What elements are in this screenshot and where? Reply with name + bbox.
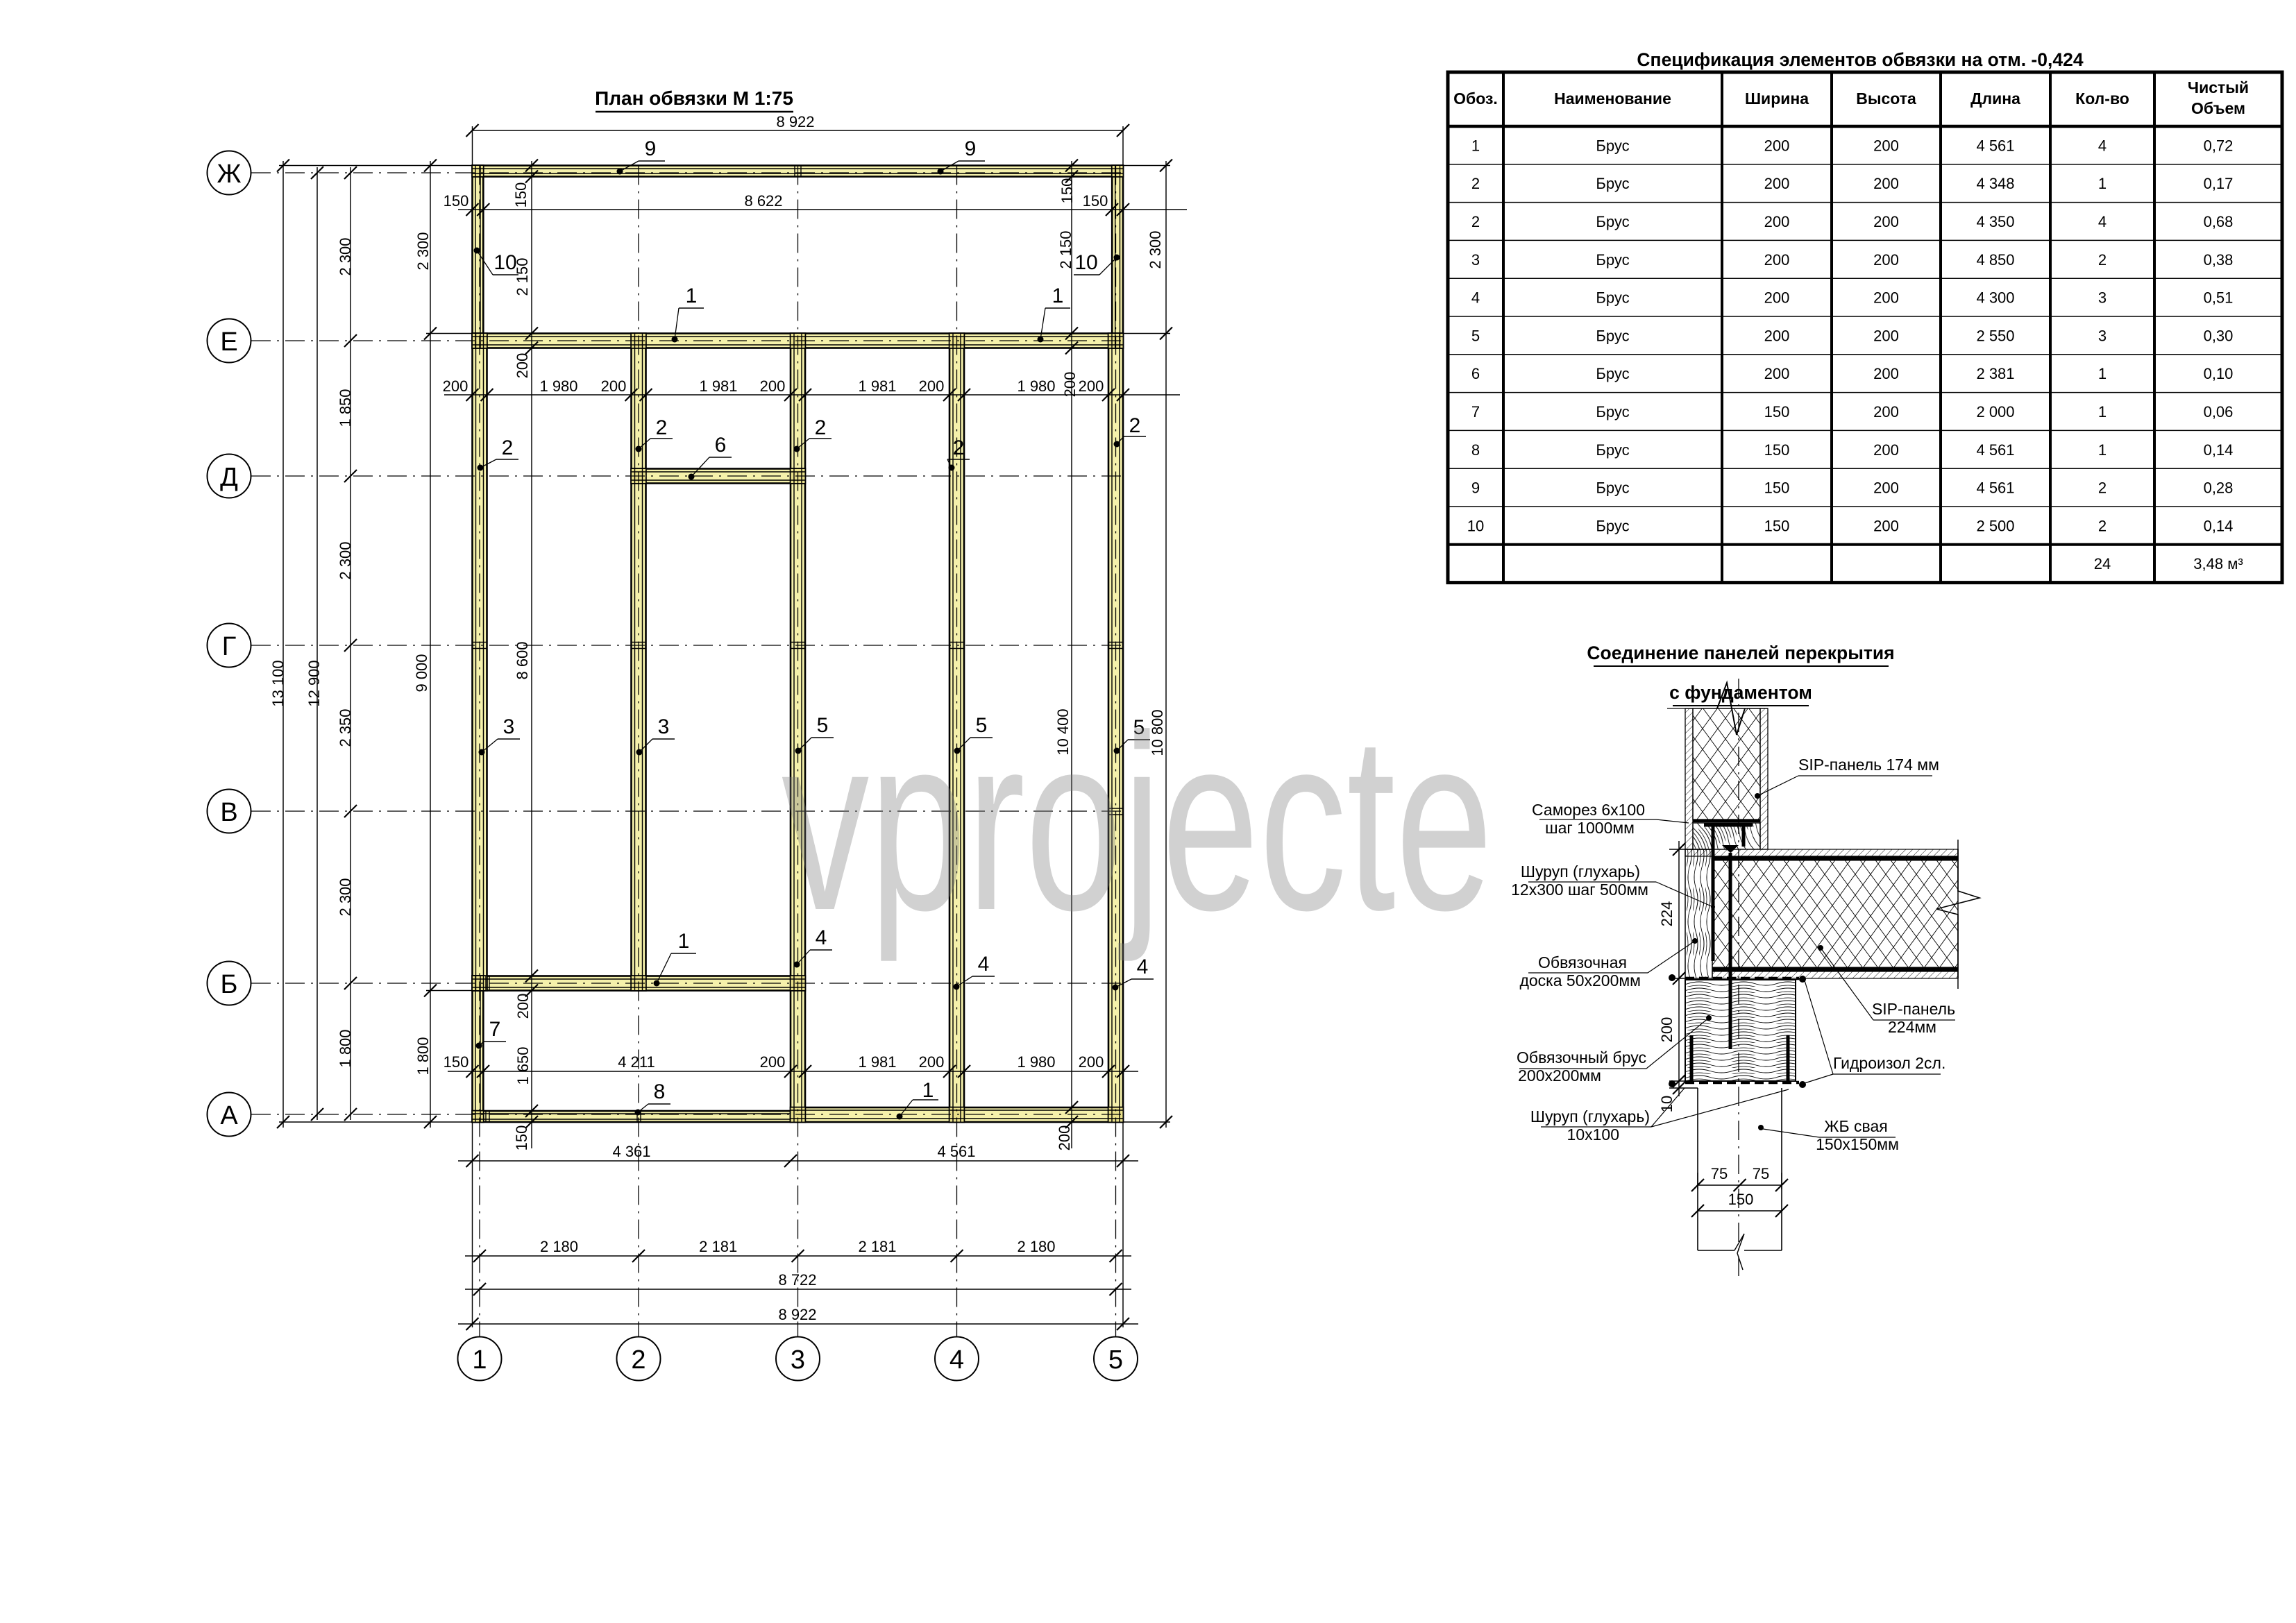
svg-text:1: 1 [1052,284,1064,307]
svg-text:Чистый: Чистый [2188,78,2249,96]
svg-text:200: 200 [1061,372,1079,398]
svg-text:2 350: 2 350 [337,708,354,747]
svg-text:200: 200 [1873,517,1899,534]
svg-text:200: 200 [1873,403,1899,420]
svg-text:200: 200 [760,377,786,395]
svg-text:2 550: 2 550 [1976,327,2014,344]
svg-text:2 181: 2 181 [858,1238,896,1255]
svg-text:2 300: 2 300 [414,232,432,270]
svg-text:Ширина: Ширина [1745,90,1809,108]
svg-text:1 850: 1 850 [337,389,354,427]
svg-text:SIP-панель: SIP-панель [1872,1000,1955,1018]
svg-text:6: 6 [715,434,727,457]
svg-text:200: 200 [1873,137,1899,154]
svg-text:4: 4 [949,1345,964,1375]
svg-text:1: 1 [922,1079,934,1102]
svg-text:Ж: Ж [217,160,241,189]
svg-text:0,14: 0,14 [2204,517,2234,534]
svg-text:9: 9 [1471,479,1480,497]
svg-text:10х100: 10х100 [1567,1125,1619,1144]
svg-text:Шуруп (глухарь): Шуруп (глухарь) [1521,863,1640,881]
svg-text:3: 3 [2098,327,2107,344]
svg-text:2: 2 [2098,517,2107,534]
svg-text:1: 1 [472,1345,487,1375]
svg-text:75: 75 [1753,1165,1769,1182]
svg-text:Гидроизол 2сл.: Гидроизол 2сл. [1833,1054,1945,1072]
svg-text:0,17: 0,17 [2204,175,2234,192]
svg-text:200: 200 [1764,365,1790,382]
svg-text:ЖБ свая: ЖБ свая [1824,1117,1887,1135]
svg-text:Брус: Брус [1596,479,1629,497]
svg-text:4 361: 4 361 [612,1143,650,1160]
svg-text:8: 8 [1471,441,1480,459]
svg-text:Объем: Объем [2191,99,2245,117]
svg-text:Саморез 6х100: Саморез 6х100 [1532,801,1645,819]
svg-text:5: 5 [1108,1345,1123,1375]
svg-text:1: 1 [2098,403,2107,420]
svg-text:Брус: Брус [1596,251,1629,269]
svg-text:200: 200 [601,377,627,395]
svg-text:0,10: 0,10 [2204,365,2234,382]
svg-text:8: 8 [654,1080,666,1103]
svg-text:200: 200 [760,1053,786,1071]
svg-text:1: 1 [2098,441,2107,459]
svg-text:9: 9 [965,137,977,160]
svg-text:200: 200 [1873,175,1899,192]
svg-text:2 300: 2 300 [337,878,354,916]
svg-text:2: 2 [815,416,827,439]
svg-text:2: 2 [1471,175,1480,192]
svg-text:7: 7 [489,1018,501,1041]
svg-text:8 622: 8 622 [744,192,782,210]
svg-text:4 561: 4 561 [1976,479,2014,497]
svg-text:4 350: 4 350 [1976,213,2014,230]
svg-text:6: 6 [1471,365,1480,382]
svg-text:4 850: 4 850 [1976,251,2014,269]
svg-text:с фундаментом: с фундаментом [1669,682,1812,703]
svg-text:1: 1 [686,284,698,307]
svg-text:2 150: 2 150 [1057,230,1074,269]
svg-text:Брус: Брус [1596,289,1629,307]
svg-text:1: 1 [1471,137,1480,154]
svg-text:12х300 шаг 500мм: 12х300 шаг 500мм [1511,881,1648,899]
svg-text:200: 200 [1764,327,1790,344]
svg-text:10: 10 [1074,251,1097,274]
svg-text:150: 150 [444,192,469,210]
svg-text:200: 200 [1764,175,1790,192]
svg-text:8 922: 8 922 [778,1306,816,1323]
svg-text:2: 2 [953,436,965,459]
svg-text:Соединение панелей перекрытия: Соединение панелей перекрытия [1587,643,1894,663]
svg-text:Брус: Брус [1596,137,1629,154]
svg-text:3: 3 [503,715,515,738]
svg-text:Г: Г [222,632,237,661]
svg-text:Брус: Брус [1596,175,1629,192]
svg-text:12 900: 12 900 [305,660,323,706]
svg-text:4 348: 4 348 [1976,175,2014,192]
svg-text:0,38: 0,38 [2204,251,2234,269]
svg-text:Брус: Брус [1596,403,1629,420]
svg-text:0,28: 0,28 [2204,479,2234,497]
svg-text:150: 150 [1083,192,1108,210]
svg-text:8 600: 8 600 [514,641,531,679]
svg-text:Б: Б [221,970,238,999]
svg-text:200: 200 [1764,213,1790,230]
svg-text:150х150мм: 150х150мм [1816,1135,1899,1153]
svg-text:1 800: 1 800 [337,1029,354,1067]
svg-text:Обвязочная: Обвязочная [1538,953,1627,971]
svg-text:1 650: 1 650 [514,1046,532,1085]
svg-text:200: 200 [1873,289,1899,307]
svg-text:200: 200 [919,377,945,395]
svg-text:Шуруп (глухарь): Шуруп (глухарь) [1530,1107,1650,1125]
svg-text:Кол-во: Кол-во [2075,90,2129,108]
svg-text:5: 5 [1471,327,1480,344]
svg-text:200: 200 [443,377,469,395]
svg-text:3,48 м³: 3,48 м³ [2193,555,2243,572]
svg-text:200: 200 [1079,1053,1104,1071]
svg-text:10: 10 [493,251,516,274]
svg-text:200: 200 [1873,327,1899,344]
svg-text:2 000: 2 000 [1976,403,2014,420]
svg-text:1: 1 [2098,365,2107,382]
svg-text:В: В [220,798,237,827]
svg-text:4 300: 4 300 [1976,289,2014,307]
svg-text:4: 4 [2098,137,2107,154]
svg-text:2: 2 [502,436,514,459]
svg-text:150: 150 [1764,403,1790,420]
svg-text:1 980: 1 980 [1017,1053,1055,1071]
svg-text:9: 9 [645,137,657,160]
svg-text:150: 150 [1764,517,1790,534]
svg-text:200: 200 [1873,479,1899,497]
svg-text:4: 4 [2098,213,2107,230]
svg-text:vprojecte: vprojecte [782,683,1493,964]
svg-text:200х200мм: 200х200мм [1518,1067,1601,1085]
svg-text:150: 150 [1764,479,1790,497]
svg-text:доска 50х200мм: доска 50х200мм [1519,971,1641,989]
svg-text:224мм: 224мм [1888,1018,1936,1036]
svg-text:2: 2 [1471,213,1480,230]
svg-text:200: 200 [514,994,532,1019]
svg-text:150: 150 [513,1125,530,1151]
svg-text:7: 7 [1471,403,1480,420]
svg-text:200: 200 [1079,377,1104,395]
svg-text:2 180: 2 180 [540,1238,578,1255]
svg-text:224: 224 [1658,901,1675,927]
svg-text:2: 2 [631,1345,645,1375]
svg-text:4 561: 4 561 [1976,441,2014,459]
svg-text:Длина: Длина [1970,90,2020,108]
svg-text:10: 10 [1467,517,1484,534]
svg-text:4 561: 4 561 [1976,137,2014,154]
svg-text:3: 3 [1471,251,1480,269]
svg-text:2 300: 2 300 [1147,230,1164,269]
svg-text:1 980: 1 980 [539,377,577,395]
svg-text:150: 150 [444,1053,469,1071]
svg-text:200: 200 [1873,251,1899,269]
svg-text:0,06: 0,06 [2204,403,2234,420]
svg-text:Брус: Брус [1596,441,1629,459]
svg-text:Брус: Брус [1596,517,1629,534]
svg-text:2: 2 [656,416,668,439]
svg-text:Наименование: Наименование [1554,90,1671,108]
svg-text:2 500: 2 500 [1976,517,2014,534]
svg-text:4 211: 4 211 [618,1053,655,1071]
svg-text:2: 2 [2098,479,2107,497]
svg-text:1 800: 1 800 [414,1037,432,1075]
svg-text:200: 200 [514,353,531,379]
svg-text:1 981: 1 981 [699,377,737,395]
svg-text:3: 3 [2098,289,2107,307]
svg-text:8 722: 8 722 [778,1271,816,1289]
svg-text:2 300: 2 300 [337,541,354,579]
svg-text:шаг 1000мм: шаг 1000мм [1545,819,1635,837]
svg-text:Брус: Брус [1596,327,1629,344]
svg-text:Высота: Высота [1856,90,1916,108]
svg-text:0,51: 0,51 [2204,289,2234,307]
svg-text:1 981: 1 981 [858,377,896,395]
svg-text:9 000: 9 000 [413,654,430,692]
svg-text:8 922: 8 922 [776,113,814,130]
svg-text:10: 10 [1658,1096,1675,1112]
svg-text:Обоз.: Обоз. [1453,90,1498,108]
svg-text:2 300: 2 300 [337,237,354,275]
svg-text:SIP-панель 174 мм: SIP-панель 174 мм [1798,756,1939,774]
svg-text:2 181: 2 181 [699,1238,737,1255]
svg-text:2 180: 2 180 [1017,1238,1055,1255]
svg-text:0,68: 0,68 [2204,213,2234,230]
svg-text:4 561: 4 561 [937,1143,975,1160]
svg-text:0,72: 0,72 [2204,137,2234,154]
svg-text:150: 150 [512,182,530,208]
svg-text:1: 1 [2098,175,2107,192]
svg-text:1 980: 1 980 [1017,377,1055,395]
svg-text:150: 150 [1728,1191,1754,1208]
svg-text:1: 1 [678,930,690,953]
svg-text:План обвязки М 1:75: План обвязки М 1:75 [595,87,793,109]
svg-text:200: 200 [1873,213,1899,230]
svg-text:200: 200 [1764,289,1790,307]
svg-text:75: 75 [1711,1165,1728,1182]
svg-text:Е: Е [220,328,237,357]
svg-text:200: 200 [1056,1125,1073,1151]
svg-text:1 981: 1 981 [858,1053,896,1071]
svg-text:Брус: Брус [1596,213,1629,230]
svg-text:200: 200 [919,1053,945,1071]
svg-text:200: 200 [1764,137,1790,154]
svg-text:Д: Д [220,463,238,492]
svg-text:А: А [220,1101,238,1130]
svg-text:2: 2 [2098,251,2107,269]
svg-text:150: 150 [1764,441,1790,459]
svg-text:2 381: 2 381 [1976,365,2014,382]
svg-text:24: 24 [2094,555,2111,572]
svg-text:13 100: 13 100 [269,660,287,706]
svg-text:200: 200 [1873,365,1899,382]
svg-text:Обвязочный брус: Обвязочный брус [1517,1048,1646,1067]
svg-text:200: 200 [1658,1017,1675,1043]
svg-text:4: 4 [1471,289,1480,307]
svg-text:Спецификация элементов обвязки: Спецификация элементов обвязки на отм. -… [1637,49,2083,70]
svg-text:Брус: Брус [1596,365,1629,382]
svg-text:150: 150 [1058,178,1076,204]
svg-text:200: 200 [1873,441,1899,459]
svg-text:0,30: 0,30 [2204,327,2234,344]
svg-text:3: 3 [791,1345,805,1375]
svg-text:200: 200 [1764,251,1790,269]
svg-text:3: 3 [658,715,670,738]
svg-text:2: 2 [1129,414,1141,437]
svg-text:0,14: 0,14 [2204,441,2234,459]
